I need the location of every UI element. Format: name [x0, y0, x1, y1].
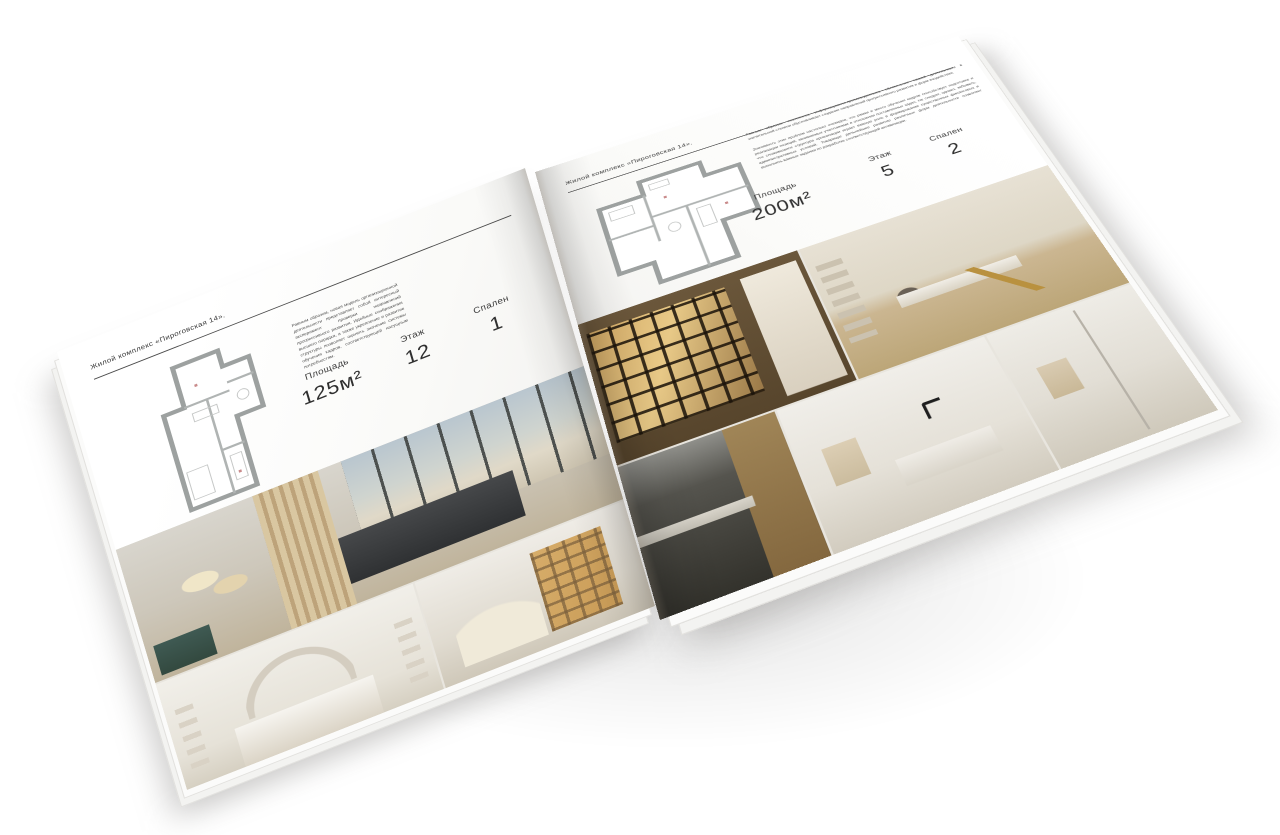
stat-floor-right: Этаж 5: [852, 144, 920, 188]
magazine-mockup-scene: Жилой комплекс «Пироговская 14». Равным …: [0, 0, 1280, 835]
stat-bedrooms-left: Спален 1: [459, 288, 531, 346]
stat-bedrooms-right: Спален 2: [915, 122, 989, 167]
